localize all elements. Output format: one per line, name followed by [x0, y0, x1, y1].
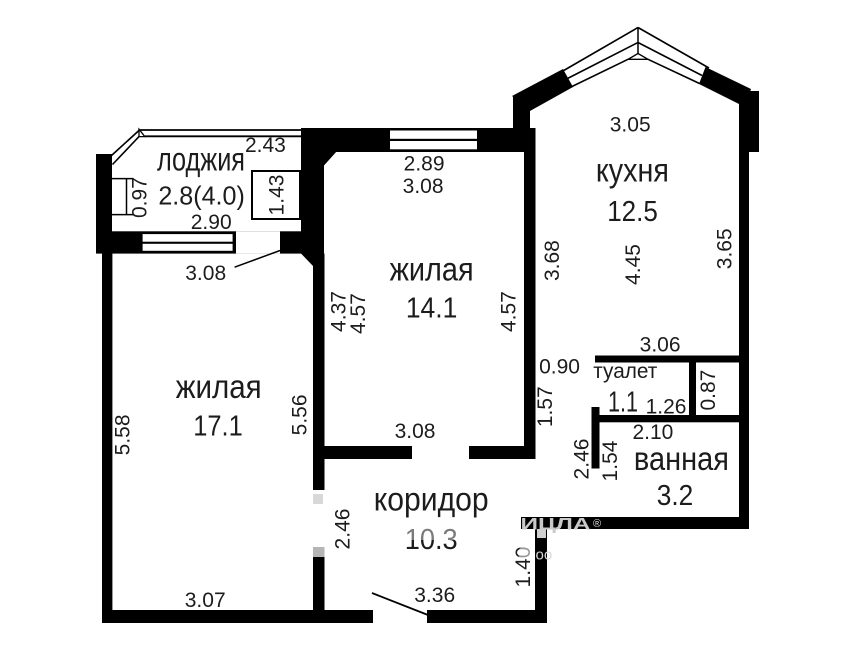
svg-text:2.8(4.0): 2.8(4.0) [158, 181, 245, 211]
svg-text:14.1: 14.1 [406, 293, 458, 325]
svg-text:3.68: 3.68 [541, 240, 564, 281]
svg-text:лоджия: лоджия [157, 141, 245, 178]
svg-text:3.07: 3.07 [185, 589, 226, 612]
svg-text:1.54: 1.54 [599, 440, 622, 481]
svg-text:12.5: 12.5 [607, 196, 658, 228]
svg-text:2.43: 2.43 [245, 134, 286, 157]
svg-text:5.56: 5.56 [289, 394, 312, 435]
svg-text:0.90: 0.90 [539, 356, 580, 379]
svg-text:коридор: коридор [374, 480, 489, 517]
svg-text:2.89: 2.89 [404, 152, 445, 175]
svg-text:4.57: 4.57 [497, 291, 520, 332]
svg-text:кухня: кухня [596, 152, 669, 189]
svg-text:1.26: 1.26 [646, 395, 687, 418]
svg-text:3.08: 3.08 [395, 420, 436, 443]
svg-text:3.08: 3.08 [403, 175, 444, 198]
svg-text:1.57: 1.57 [534, 386, 557, 427]
svg-text:0.87: 0.87 [697, 370, 720, 411]
svg-text:3.36: 3.36 [414, 584, 455, 607]
svg-text:0.97: 0.97 [129, 177, 152, 218]
svg-text:2.90: 2.90 [191, 211, 232, 234]
svg-text:®: ® [593, 518, 601, 530]
svg-text:5.58: 5.58 [111, 414, 134, 455]
svg-text:4.45: 4.45 [622, 244, 645, 285]
svg-text:3.65: 3.65 [714, 228, 737, 269]
svg-text:оо: оо [536, 547, 553, 564]
svg-text:1.43: 1.43 [266, 175, 289, 216]
svg-text:жилая: жилая [390, 250, 474, 287]
svg-text:17.1: 17.1 [193, 410, 243, 442]
svg-text:4.57: 4.57 [347, 293, 370, 334]
svg-text:2.46: 2.46 [332, 509, 355, 550]
svg-text:туалет: туалет [593, 359, 657, 383]
svg-text:ванная: ванная [634, 440, 729, 477]
svg-text:1.1: 1.1 [608, 387, 638, 419]
svg-text:2.46: 2.46 [571, 439, 594, 480]
svg-text:3.08: 3.08 [185, 262, 226, 285]
svg-text:3.05: 3.05 [610, 114, 651, 137]
svg-text:ИЦЛА: ИЦЛА [521, 516, 591, 534]
svg-text:жилая: жилая [176, 368, 262, 405]
svg-text:3.2: 3.2 [657, 480, 694, 512]
svg-text:3.06: 3.06 [640, 333, 681, 356]
